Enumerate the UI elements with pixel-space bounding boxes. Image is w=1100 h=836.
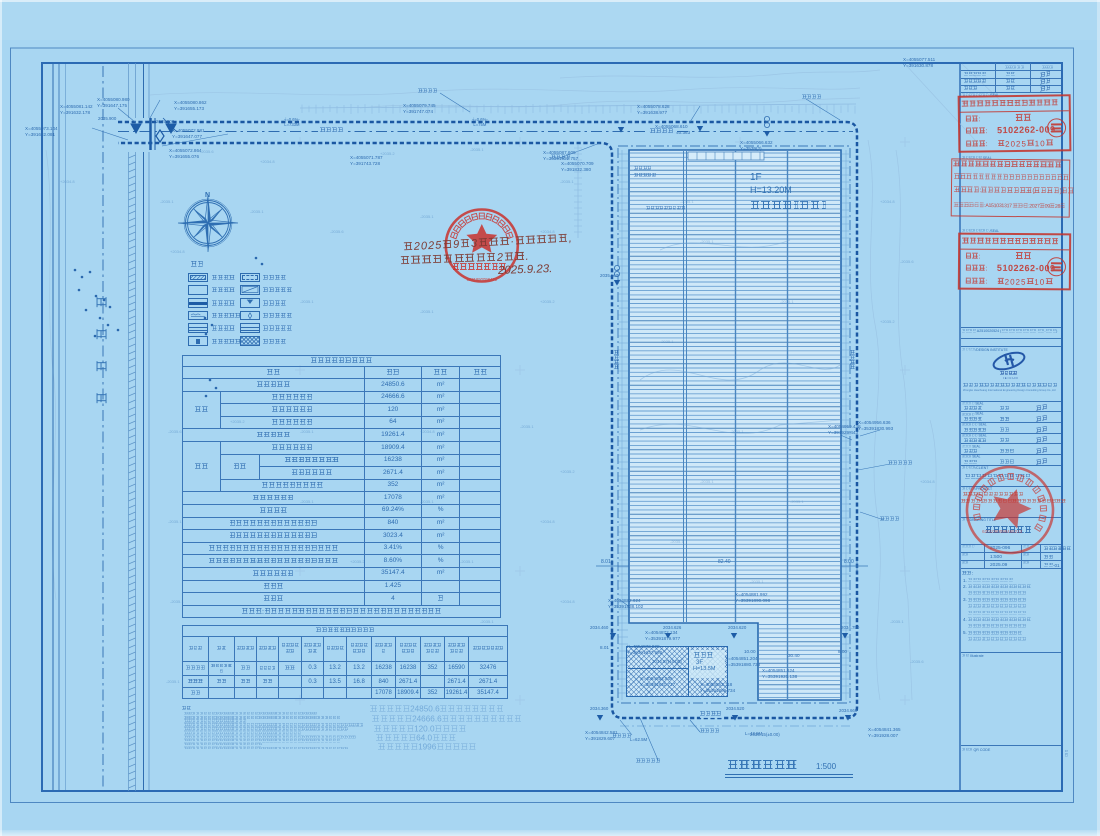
svg-text:6201090098465213: 6201090098465213 — [982, 529, 1023, 534]
